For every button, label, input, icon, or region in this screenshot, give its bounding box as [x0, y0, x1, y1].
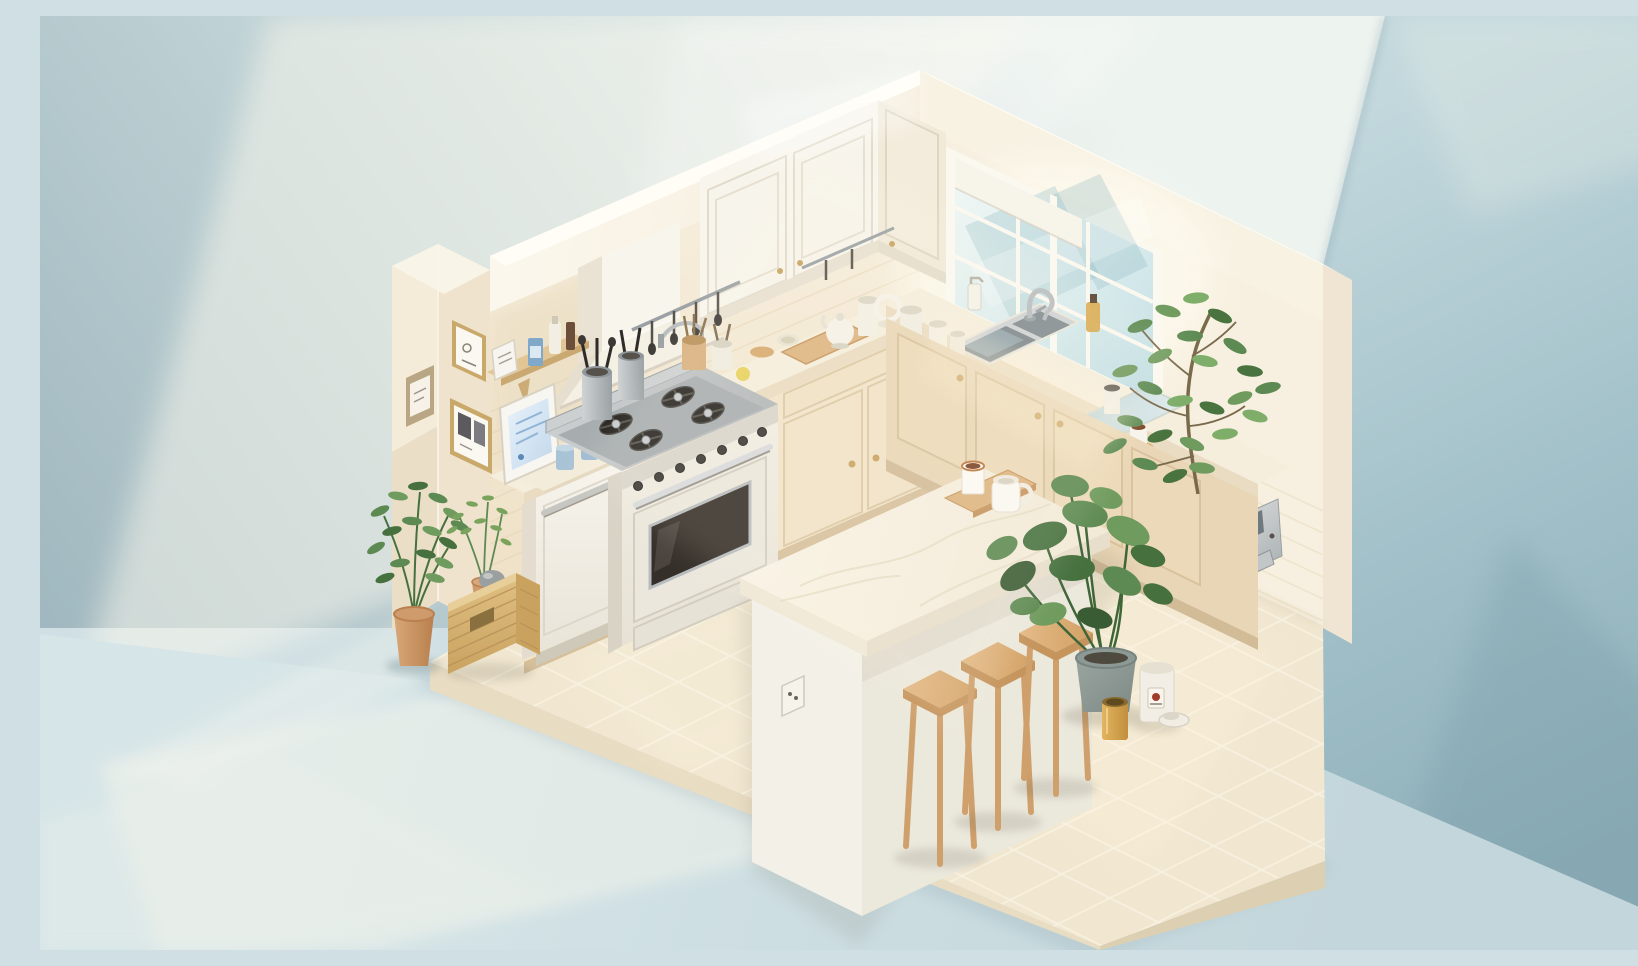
white-scoop	[1159, 712, 1189, 727]
terracotta-pot	[394, 607, 434, 666]
steel-crock	[578, 335, 616, 420]
white-bottle	[549, 322, 561, 354]
isometric-kitchen-render: Isometric cutaway 3D render of a miniatu…	[40, 16, 1638, 950]
wall-end-cap	[1323, 264, 1352, 644]
dark-bottle	[566, 322, 575, 350]
gold-cup	[1102, 697, 1128, 740]
